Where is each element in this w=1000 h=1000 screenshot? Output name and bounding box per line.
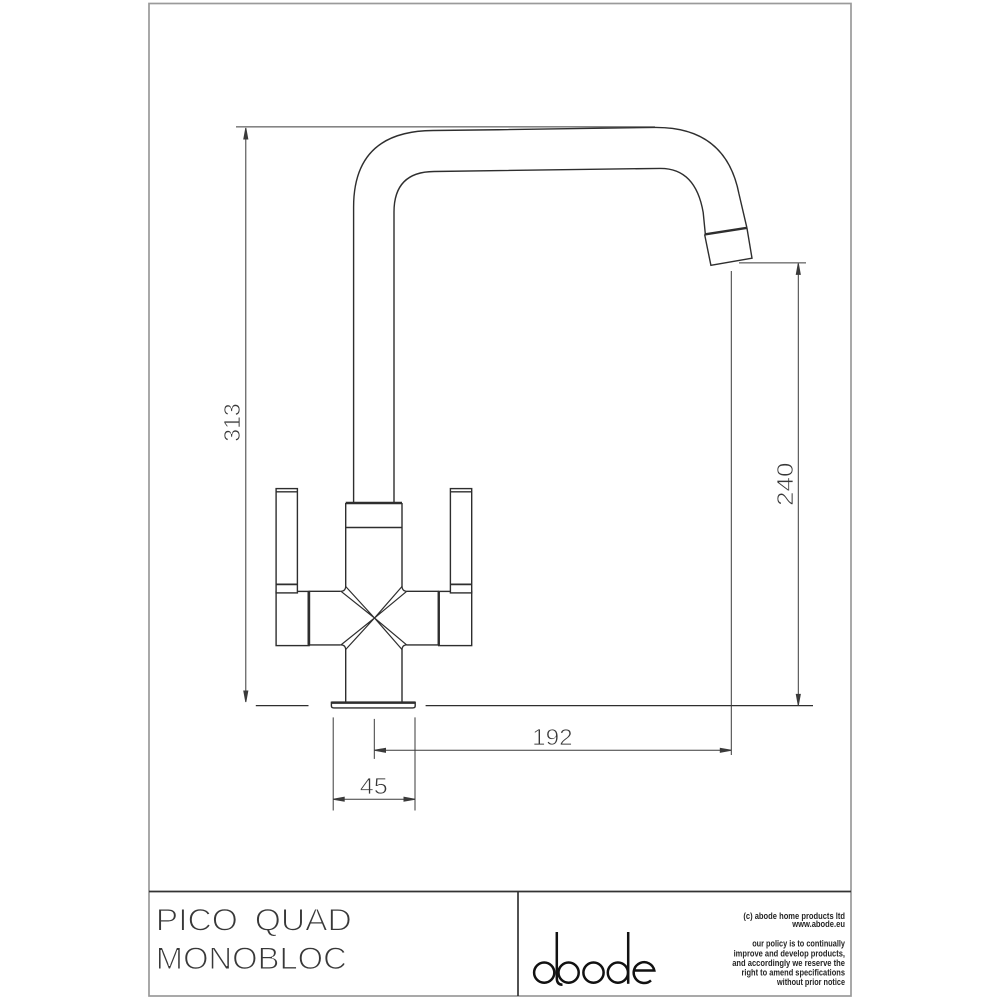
- svg-text:240: 240: [772, 463, 798, 507]
- svg-text:www.abode.eu: www.abode.eu: [791, 919, 845, 930]
- svg-text:without prior notice: without prior notice: [776, 977, 845, 988]
- svg-text:192: 192: [532, 724, 573, 750]
- svg-text:45: 45: [360, 773, 388, 799]
- svg-text:313: 313: [219, 403, 245, 442]
- svg-text:PICO QUAD: PICO QUAD: [156, 902, 352, 938]
- svg-text:MONOBLOC: MONOBLOC: [156, 940, 347, 976]
